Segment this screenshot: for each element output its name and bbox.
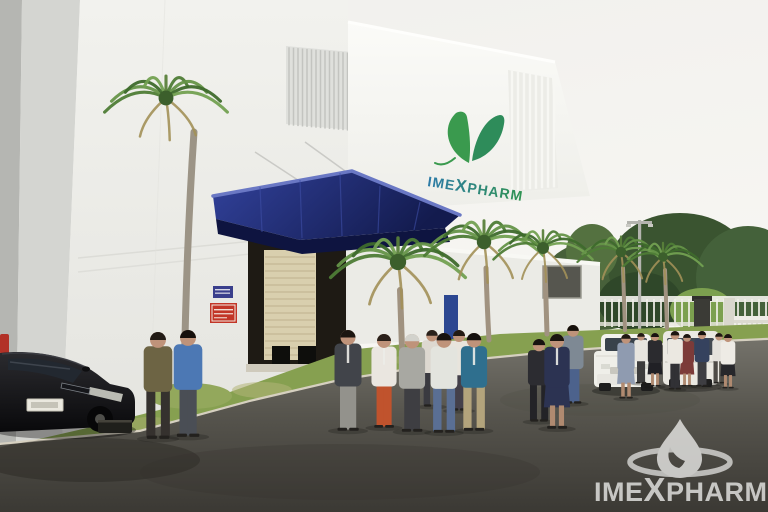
storm-drain [98, 420, 132, 433]
factory-photo-scene: IMEXPHARM [0, 0, 768, 512]
warning-sign-red [210, 303, 237, 323]
louver-vent [286, 46, 352, 131]
vertical-fins [508, 70, 558, 192]
photo-canvas: IMEXPHARM [0, 0, 768, 512]
wheel [599, 383, 611, 391]
dock-bumper [272, 346, 290, 366]
dark-window [543, 266, 581, 298]
fire-hydrant [0, 334, 9, 354]
info-sign-blue [213, 286, 233, 298]
headlight [601, 364, 610, 369]
roller-door [264, 250, 316, 360]
side-mirror [82, 366, 90, 371]
loading-dock [246, 240, 346, 372]
